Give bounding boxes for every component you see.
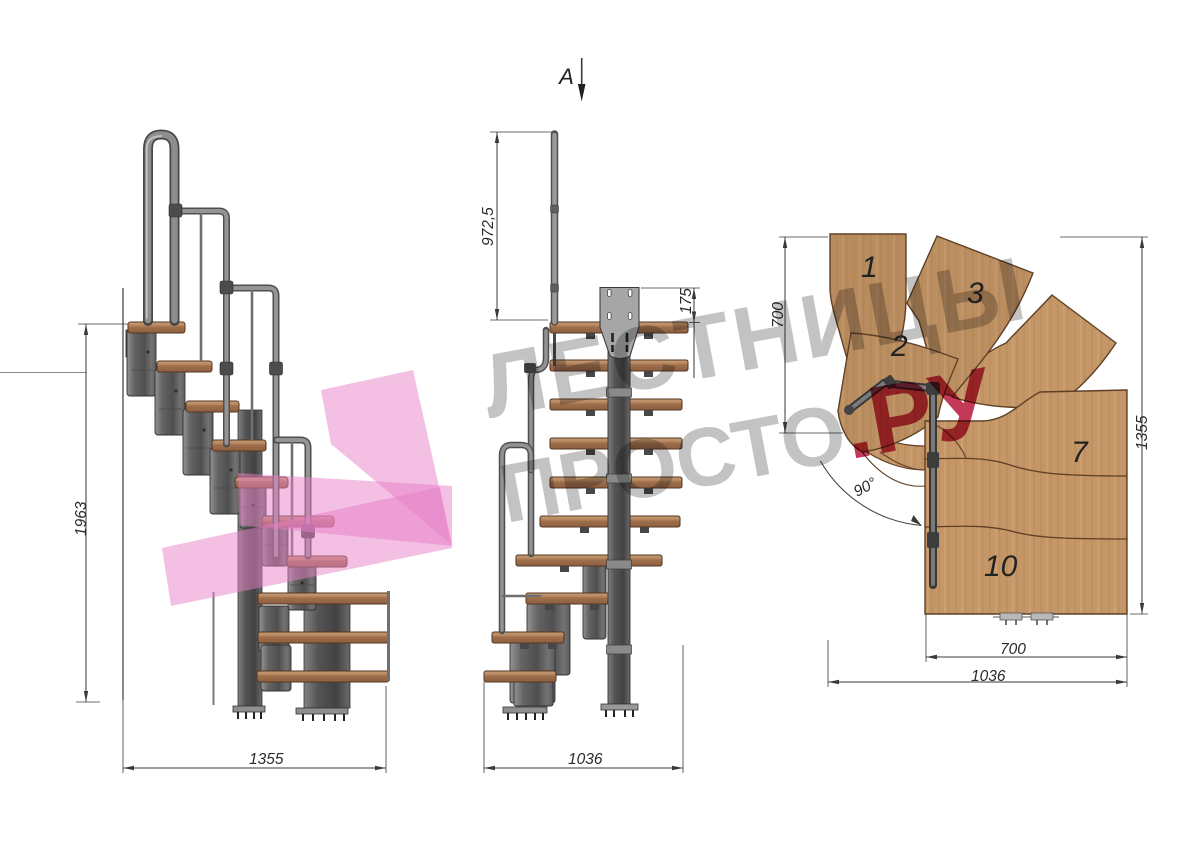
svg-text:10: 10 — [984, 550, 1018, 583]
svg-text:7: 7 — [1071, 436, 1089, 469]
svg-text:700: 700 — [1000, 641, 1026, 658]
svg-text:1963: 1963 — [73, 501, 90, 536]
svg-text:A: A — [557, 64, 574, 89]
svg-text:1355: 1355 — [249, 751, 284, 768]
svg-text:1355: 1355 — [1134, 415, 1151, 450]
svg-text:1036: 1036 — [568, 751, 603, 768]
svg-text:1036: 1036 — [971, 668, 1006, 685]
svg-text:972,5: 972,5 — [480, 207, 497, 246]
